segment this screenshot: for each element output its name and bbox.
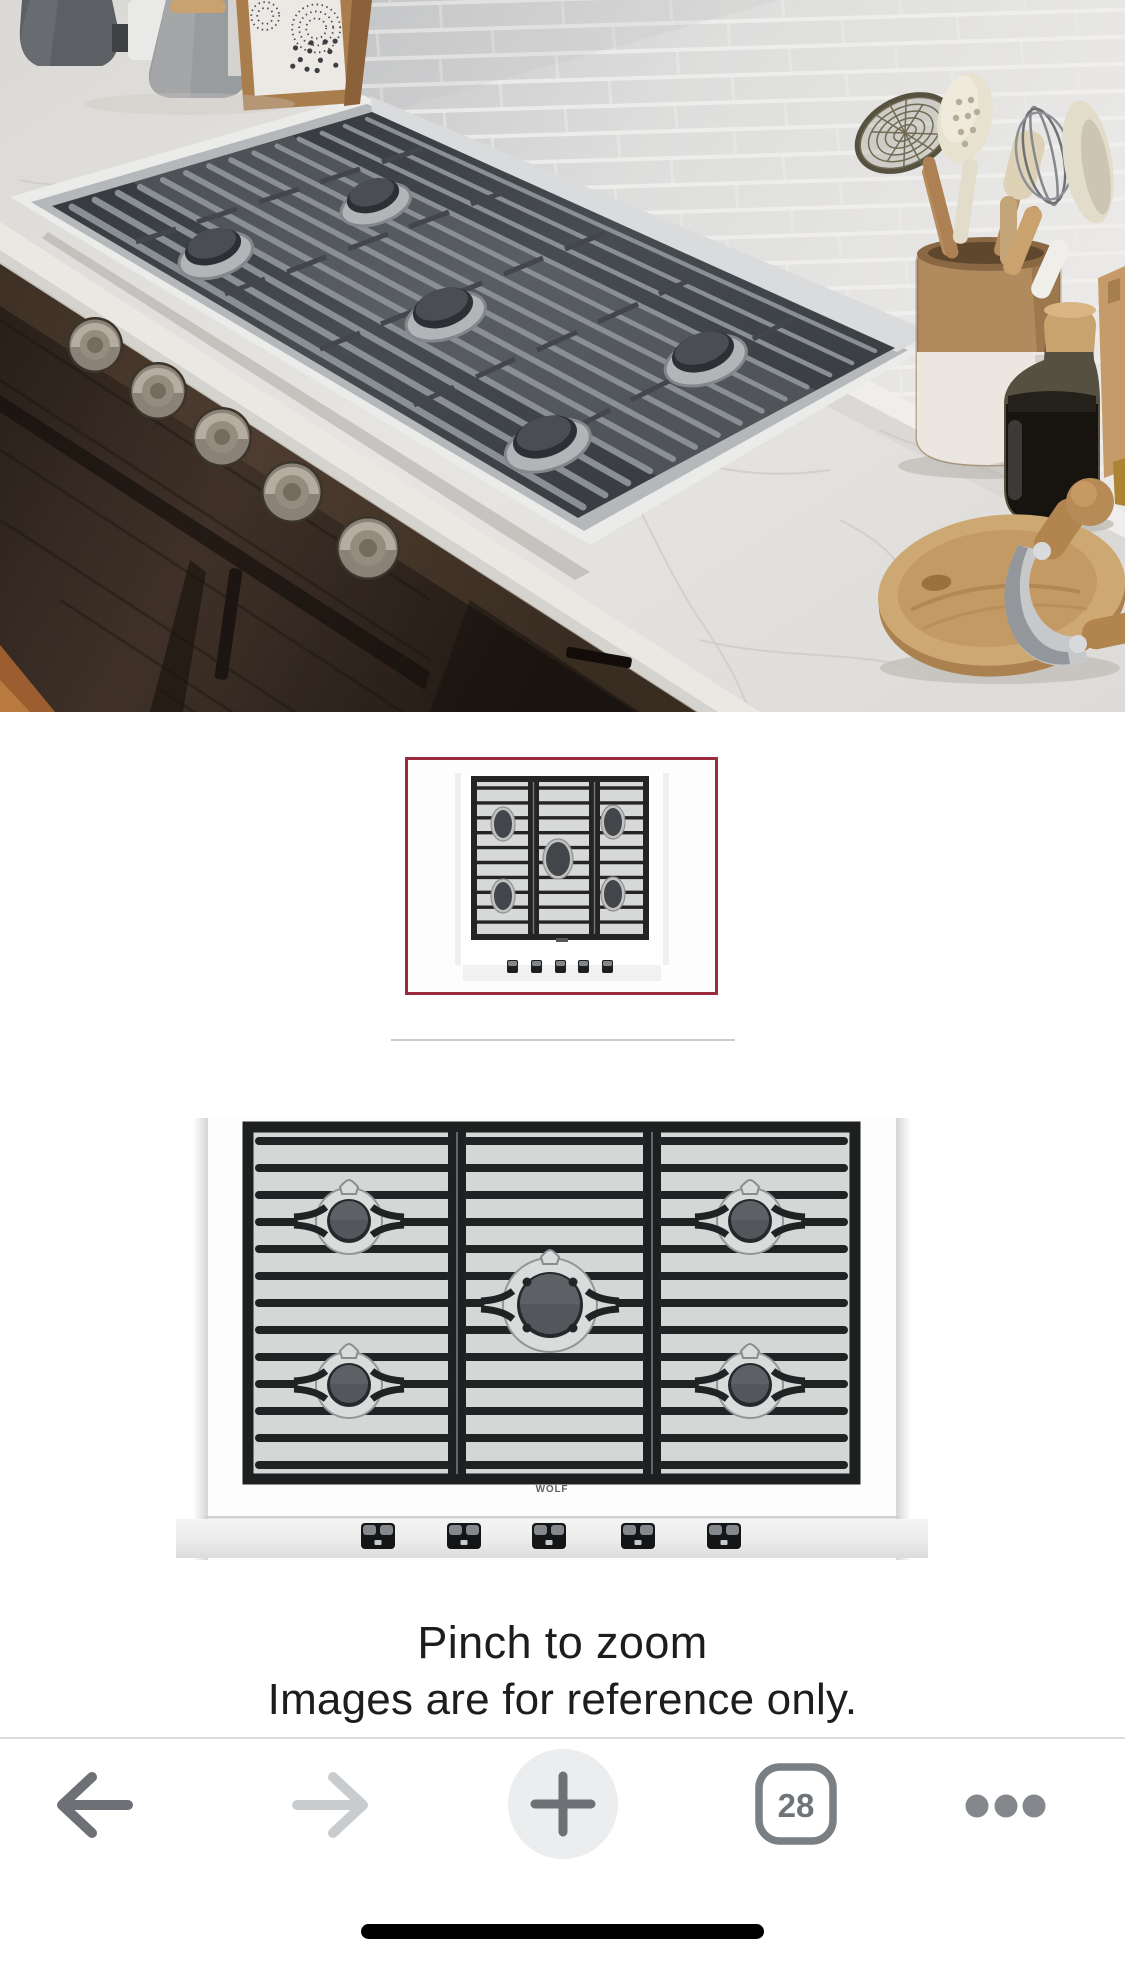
svg-text:28: 28 [778, 1787, 815, 1824]
svg-text:WOLF: WOLF [536, 1484, 569, 1495]
